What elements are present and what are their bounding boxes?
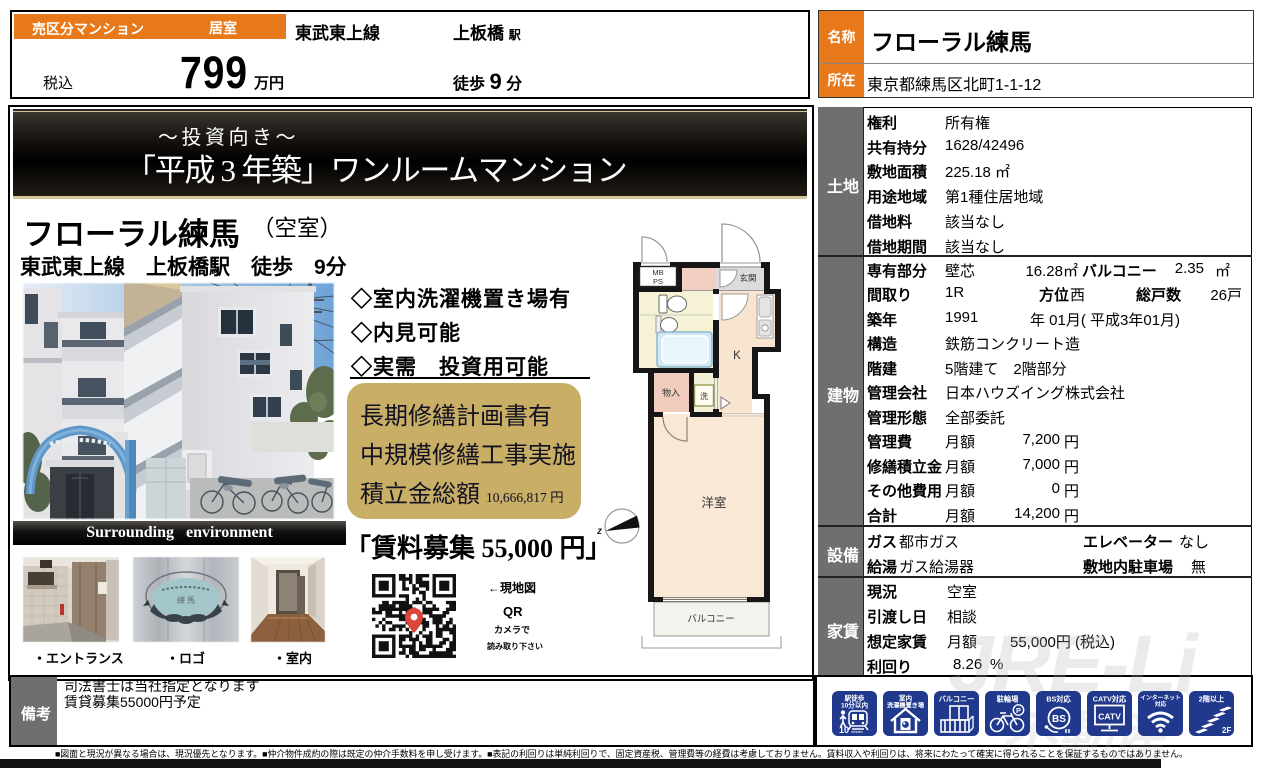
svg-text:インターネット: インターネット [1140, 694, 1181, 702]
svg-text:CATV対応: CATV対応 [1093, 695, 1127, 704]
svg-text:10分以内: 10分以内 [841, 701, 869, 710]
svg-text:MB: MB [652, 268, 663, 277]
svg-text:物入: 物入 [662, 387, 680, 398]
svg-text:BS: BS [1052, 714, 1066, 725]
svg-text:z: z [596, 526, 602, 537]
svg-text:練 馬: 練 馬 [177, 595, 195, 605]
svg-text:BS対応: BS対応 [1046, 695, 1071, 704]
svg-text:2階以上: 2階以上 [1199, 695, 1225, 704]
svg-text:PS: PS [653, 277, 663, 286]
svg-text:P: P [1016, 706, 1021, 715]
svg-text:バルコニー: バルコニー [687, 614, 734, 625]
svg-text:駐輪場: 駐輪場 [997, 695, 1019, 704]
svg-text:minutes: minutes [851, 730, 863, 734]
svg-text:CATV: CATV [1098, 712, 1121, 722]
svg-text:玄関: 玄関 [739, 273, 756, 283]
svg-text:駅徒歩: 駅徒歩 [845, 694, 865, 703]
svg-text:洋室: 洋室 [701, 495, 726, 510]
svg-text:10: 10 [839, 725, 849, 735]
svg-text:洗: 洗 [700, 391, 708, 401]
svg-text:室内: 室内 [899, 694, 913, 703]
svg-text:K: K [733, 350, 741, 362]
svg-text:対応: 対応 [1154, 700, 1167, 708]
svg-text:2F: 2F [1222, 726, 1231, 735]
svg-text:バルコニー: バルコニー [939, 695, 975, 704]
